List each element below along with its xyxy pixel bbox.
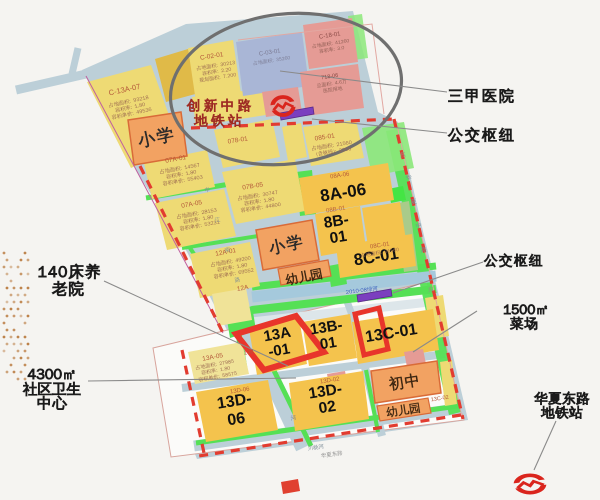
svg-text:06: 06 bbox=[226, 410, 246, 430]
svg-text:02: 02 bbox=[317, 398, 337, 417]
svg-text:01: 01 bbox=[328, 228, 348, 248]
svg-text:01: 01 bbox=[319, 334, 338, 353]
